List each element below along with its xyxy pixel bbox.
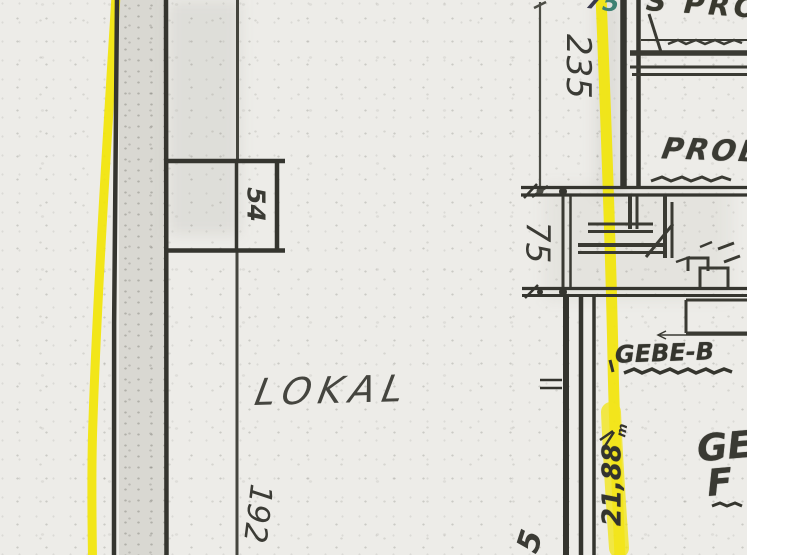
plan-linework xyxy=(0,0,747,555)
label-f-fragment: F xyxy=(705,463,733,502)
dimension-235: 235 xyxy=(561,34,595,94)
left-wall-lines xyxy=(114,0,167,555)
floorplan-screenshot: LOKAL 54 192 235 75 21,88 m 5 75 S PRO P… xyxy=(0,0,794,555)
prob-underline-scribble xyxy=(651,177,731,181)
dimension-75: 75 xyxy=(522,222,555,264)
dimension-chain-line xyxy=(532,2,548,197)
bottom-right-wall-lines xyxy=(540,296,594,555)
dimension-192: 192 xyxy=(238,481,276,546)
label-gebe-b: GEBE-B xyxy=(615,339,715,366)
label-prob: PROB xyxy=(660,134,747,167)
scanned-paper: LOKAL 54 192 235 75 21,88 m 5 75 S PRO P… xyxy=(0,0,747,555)
inner-partition-line xyxy=(237,0,238,555)
entrance-detail xyxy=(563,196,740,290)
dimension-54: 54 xyxy=(244,185,269,225)
top-right-section-lines xyxy=(630,14,747,75)
dimension-21-88: 21,88 xyxy=(600,433,626,538)
double-line-upper xyxy=(521,184,747,198)
gebe-box xyxy=(658,300,747,339)
room-label-lokal: LOKAL xyxy=(252,370,413,411)
double-line-lower xyxy=(522,285,747,298)
top-edge-dimension-fragment: 75 xyxy=(584,0,620,16)
dimension-21-88-unit: m xyxy=(615,423,630,439)
right-wall-lines xyxy=(624,0,639,189)
scan-edge-white-area xyxy=(747,0,794,555)
